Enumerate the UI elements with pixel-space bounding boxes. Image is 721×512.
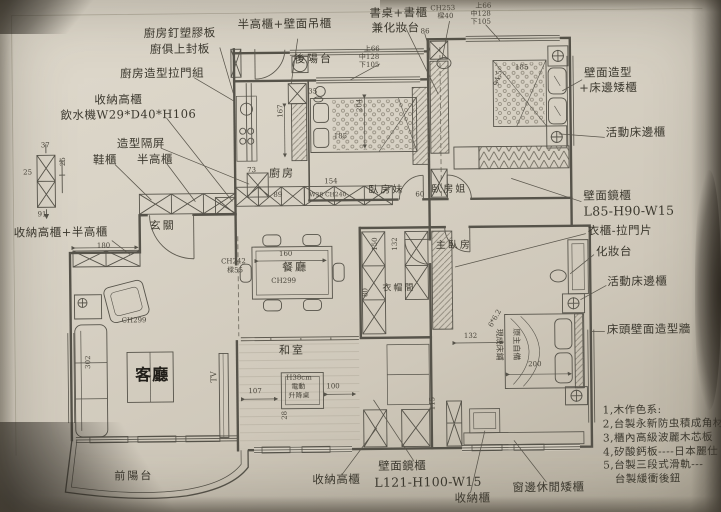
dim-label: 下105 — [359, 61, 379, 69]
dim-label: 200 — [528, 360, 541, 368]
room-label: 衣帽間 — [382, 283, 415, 294]
callout-label: 收納櫃 — [454, 492, 490, 506]
dim-label: 107 — [248, 387, 261, 395]
callout-label: 半高櫃 — [137, 153, 173, 167]
dim-label: 60 — [415, 190, 424, 198]
dim-label: 302 — [84, 355, 92, 368]
callout-label: 飲水機W29*D40*H106 — [60, 108, 196, 123]
dim-label: 180 — [97, 242, 110, 250]
dim-label: 原主自備 — [512, 328, 522, 360]
dim-label: 185 — [334, 132, 347, 140]
callout-label: 兼化妝台 — [372, 21, 420, 35]
callout-label: 收納高櫃+半高櫃 — [14, 226, 108, 240]
material-notes: 1,木作色系:2,台製永新防虫積成角材3,櫃內高級波麗木芯板4,矽酸鈣板----… — [603, 403, 721, 487]
note-line: 1,木作色系: — [603, 403, 721, 418]
dim-label: 25 — [23, 168, 32, 176]
note-line: 台製緩衝後鈕 — [603, 472, 721, 487]
dim-label: 73 — [247, 166, 256, 174]
callout-label: 造型隔屏 — [117, 137, 165, 151]
dim-label: 94.5 — [492, 70, 504, 87]
note-line: 5,台製三段式滑軌--- — [603, 459, 721, 474]
dim-label: CH299 — [122, 316, 147, 324]
dim-label: 樑55 — [227, 266, 243, 274]
callout-label: 床頭壁面造型牆 — [607, 323, 691, 337]
room-label: 廚房 — [269, 168, 295, 181]
dim-label: CH242 — [221, 257, 246, 265]
dim-label: 上66 — [475, 2, 491, 10]
room-label: 客廳 — [135, 366, 169, 385]
room-label: 餐廳 — [282, 262, 308, 275]
dim-label: 樑40 — [437, 12, 453, 20]
floorplan-photo: 玄關客廳餐廳廚房後陽台前陽台和室臥房妹臥房姐主臥房衣帽間廚房釘塑膠板廚俱上封板半… — [0, 0, 721, 512]
dim-label: 132 — [464, 332, 477, 340]
dim-label: 6*6.2 — [487, 308, 503, 329]
callout-label: 衣櫃-拉門片 — [588, 224, 653, 238]
dim-label: 中128 — [470, 10, 490, 18]
room-label: 臥房妹 — [368, 185, 404, 197]
dim-label: 115 — [428, 397, 436, 410]
callout-label: 收納高櫃 — [94, 93, 142, 107]
callout-label: 半高櫃+壁面吊櫃 — [238, 17, 332, 31]
callout-label: 鞋櫃 — [93, 154, 117, 167]
callout-label: 壁面造型 — [584, 66, 632, 80]
room-label: 玄關 — [150, 220, 176, 233]
dim-label: 中128 — [359, 53, 379, 61]
dim-label: 37 — [41, 141, 50, 149]
dim-label: 100 — [326, 382, 339, 390]
dim-label: CH299 — [271, 277, 296, 285]
callout-label: 書桌+書櫃 — [369, 6, 427, 20]
note-line: 4,矽酸鈣板----日本麗仕 — [603, 445, 721, 460]
dim-label: 上66 — [364, 45, 380, 53]
callout-label: L85-H90-W15 — [583, 204, 674, 219]
callout-label: +床邊矮櫃 — [579, 81, 637, 95]
dim-label: 150 — [371, 237, 379, 250]
dim-label: 185 — [515, 63, 528, 71]
dim-label: 下105 — [471, 18, 491, 26]
dim-label: TV — [209, 371, 218, 382]
room-label: 主臥房 — [436, 240, 472, 252]
callout-label: 化妝台 — [596, 245, 632, 259]
note-line: 3,櫃內高級波麗木芯板 — [603, 431, 721, 446]
note-line: 2,台製永新防虫積成角材 — [603, 417, 721, 432]
callout-label: 壁面鏡櫃 — [378, 459, 426, 473]
dim-label: 35 — [308, 87, 317, 95]
dim-label: 25 — [59, 157, 67, 166]
dim-label: 91 — [38, 210, 47, 218]
floorplan-drawing: 玄關客廳餐廳廚房後陽台前陽台和室臥房妹臥房姐主臥房衣帽間廚房釘塑膠板廚俱上封板半… — [0, 0, 721, 512]
dim-label: 80 — [361, 288, 369, 297]
room-label: 後陽台 — [294, 53, 333, 66]
dim-label: 86 — [421, 27, 430, 35]
dim-label: H38cm — [286, 374, 312, 382]
dim-label: 160 — [279, 250, 292, 258]
callout-label: L121-H100-W15 — [374, 475, 481, 490]
room-label: 前陽台 — [114, 470, 153, 483]
callout-label: 窗邊休閒矮櫃 — [512, 481, 584, 495]
room-label: 和室 — [279, 345, 305, 358]
callout-label: 收納高櫃 — [312, 473, 360, 487]
dim-label: 電動 — [291, 383, 305, 391]
dim-label: 154 — [324, 177, 337, 185]
dim-label: 132 — [391, 237, 399, 250]
dim-label: 現成床鋪 — [495, 329, 505, 361]
callout-label: 活動床邊櫃 — [607, 275, 667, 289]
callout-label: 廚俱上封板 — [150, 43, 210, 57]
callout-label: 活動床邊櫃 — [606, 126, 666, 140]
dim-label: 升降桌 — [288, 392, 309, 400]
callout-label: 廚房造型拉門組 — [120, 67, 204, 81]
dim-label: 204 — [355, 99, 363, 112]
dim-label: 167 — [276, 104, 284, 117]
dim-label: 89 — [273, 191, 282, 199]
room-label: 臥房姐 — [431, 184, 467, 196]
callout-label: 壁面鏡櫃 — [583, 189, 631, 203]
dim-label: 28 — [281, 411, 289, 420]
labels-layer: 玄關客廳餐廳廚房後陽台前陽台和室臥房妹臥房姐主臥房衣帽間廚房釘塑膠板廚俱上封板半… — [0, 0, 721, 512]
callout-label: 廚房釘塑膠板 — [144, 27, 216, 41]
dim-label: W38 CH240 — [309, 192, 346, 199]
